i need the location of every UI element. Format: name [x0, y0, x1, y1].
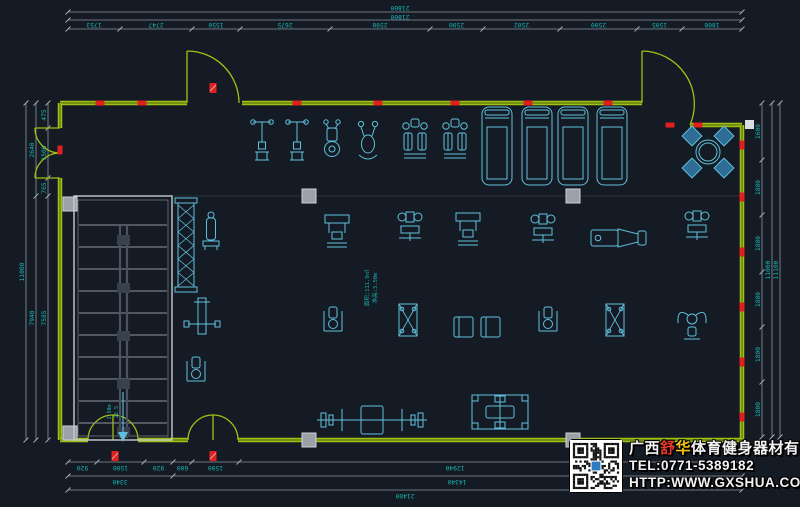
dim-label: 1550 [208, 21, 223, 28]
dual-bench-glyph [454, 317, 500, 337]
dim-label: 2.50m [107, 404, 113, 419]
plate-rack-glyph [203, 212, 219, 250]
wall-marker [604, 101, 613, 106]
dim-label: 765 [41, 182, 48, 194]
column [302, 189, 316, 203]
dim-label: 1500 [208, 464, 223, 471]
dim-label: 1800 [755, 180, 762, 195]
wall-marker [740, 193, 745, 202]
climber-glyph [443, 119, 467, 158]
dim-label: 920 [153, 464, 165, 471]
dim-label: 2640 [29, 142, 36, 157]
company-phone: TEL:0771-5389182 [629, 457, 800, 474]
wall-marker [740, 141, 745, 150]
dim-label: 1500 [113, 464, 128, 471]
press-machine-glyph [685, 211, 709, 240]
staircase: 2.50m22.5 [74, 196, 172, 442]
qr-code [570, 440, 622, 492]
company-name-part: 体育健身器材有限公司 [691, 440, 800, 457]
dim-label: 600 [177, 464, 189, 471]
column [63, 426, 77, 440]
dim-label: 3340 [112, 478, 127, 485]
elliptical-glyph [358, 121, 377, 159]
company-website: HTTP:WWW.GXSHUA.COM [629, 474, 800, 491]
treadmill-glyph [522, 107, 552, 185]
dim-label: 14340 [447, 478, 466, 485]
press-machine-glyph [531, 214, 555, 243]
dim-label: 11000 [19, 262, 26, 281]
dim-label: 2590 [449, 21, 464, 28]
dim-label: 1800 [755, 236, 762, 251]
dim-label: 2590 [372, 21, 387, 28]
dim-label: 7940 [29, 310, 36, 325]
seated-machine-glyph [187, 357, 205, 381]
wall-marker [293, 101, 302, 106]
wall-marker [694, 123, 703, 128]
dim-label: 21800 [390, 13, 409, 20]
dumbbell-rack-glyph [175, 198, 197, 292]
dim-label: 11100 [773, 260, 780, 279]
olympic-bench-glyph [317, 406, 427, 434]
spin-bike-glyph [286, 120, 309, 160]
company-stamp: 广西舒华体育健身器材有限公司 TEL:0771-5389182 HTTP:WWW… [570, 440, 800, 492]
column [566, 189, 580, 203]
wall-marker [740, 358, 745, 367]
exercise-bike-glyph [324, 120, 340, 157]
wall-marker [138, 101, 147, 106]
corner-column [745, 120, 754, 129]
dim-label: 12940 [445, 464, 464, 471]
floor-plan-drawing: 2180021800175327471550267525902590250225… [0, 0, 800, 507]
dim-label: 1800 [755, 292, 762, 307]
dim-label: 21800 [390, 4, 409, 11]
treadmill-glyph [597, 107, 627, 185]
wall-marker [451, 101, 460, 106]
dim-label: 11000 [765, 260, 772, 279]
dim-label: 1600 [755, 124, 762, 139]
dim-label: 475 [41, 109, 48, 121]
wall-marker [374, 101, 383, 106]
wall-marker [740, 248, 745, 257]
dim-label: 1800 [755, 347, 762, 362]
seated-machine-glyph [539, 307, 557, 331]
wall-marker [58, 146, 63, 155]
cable-frame-glyph [606, 304, 624, 336]
treadmill-glyph [558, 107, 588, 185]
walls [60, 103, 742, 440]
dim-label: 1800 [755, 402, 762, 417]
equipment [175, 107, 734, 434]
cable-frame-glyph [399, 304, 417, 336]
wall-marker [666, 123, 675, 128]
treadmill-glyph [482, 107, 512, 185]
column [63, 197, 77, 211]
dim-label: 2675 [277, 21, 292, 28]
lat-machine-glyph [325, 215, 349, 247]
company-name-part: 华 [676, 440, 692, 457]
wall-marker [740, 413, 745, 422]
dim-label: 1800 [704, 21, 719, 28]
spin-bike-glyph [251, 120, 274, 160]
pec-fly-glyph [678, 312, 706, 339]
wall-marker [96, 101, 105, 106]
company-name: 广西舒华体育健身器材有限公司 [629, 440, 800, 457]
wall-marker [524, 101, 533, 106]
dim-label: 7585 [41, 310, 48, 325]
dim-label: 2502 [514, 21, 529, 28]
bench-press-glyph [184, 298, 220, 334]
dim-label: 面积:111.9㎡ [363, 269, 371, 306]
center-note: 面积:111.9㎡净高:3.50m [363, 269, 379, 306]
dim-label: 净高:3.50m [371, 272, 379, 304]
cad-floor-plan: 2180021800175327471550267525902590250225… [0, 0, 800, 507]
table-set-glyph [682, 126, 734, 178]
column [302, 433, 316, 447]
dim-label: 1753 [86, 21, 101, 28]
columns [63, 120, 754, 447]
dim-label: 22.5 [114, 406, 120, 418]
dim-label: 920 [77, 464, 89, 471]
company-info: 广西舒华体育健身器材有限公司 TEL:0771-5389182 HTTP:WWW… [629, 440, 800, 491]
wall-marker [740, 303, 745, 312]
press-machine-glyph [398, 212, 422, 241]
dim-label: 1505 [652, 21, 667, 28]
dim-label: 2500 [591, 21, 606, 28]
wall-markers [58, 83, 745, 461]
dim-label: 21400 [395, 492, 414, 499]
climber-glyph [403, 119, 427, 158]
leg-press-glyph [591, 229, 646, 247]
power-rack-glyph [472, 395, 528, 429]
seated-machine-glyph [324, 307, 342, 331]
lat-machine-glyph [456, 213, 480, 245]
qr-code-image [570, 440, 622, 492]
company-name-part: 舒 [660, 440, 676, 457]
company-name-part: 广西 [629, 440, 660, 457]
dim-label: 2747 [148, 21, 163, 28]
